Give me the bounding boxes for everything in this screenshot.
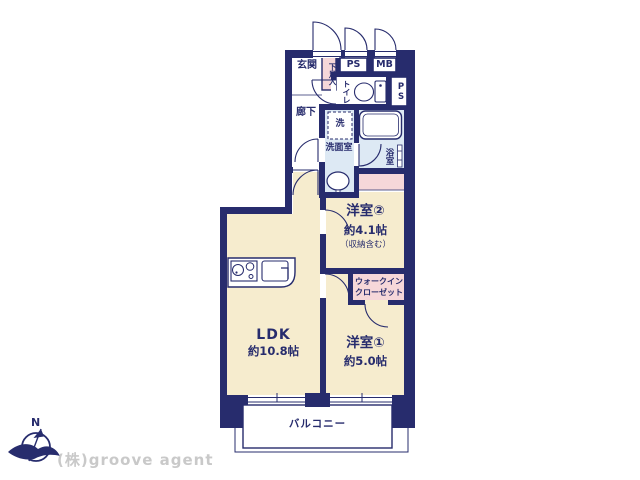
wall-left-upper — [285, 58, 292, 210]
label-wic-line2: クローゼット — [353, 288, 405, 297]
floor-ldk — [227, 214, 320, 395]
pillar-center — [305, 393, 330, 407]
label-bedroom1: 洋室① — [326, 336, 405, 352]
compass-north-icon — [8, 429, 60, 461]
label-genkan: 玄関 — [292, 60, 322, 72]
label-bedroom1-size: 約5.0帖 — [326, 355, 405, 368]
ps-door-arc — [345, 28, 367, 50]
floor-plan-canvas: 玄関 下足入 PS MB トイレ PS 廊下 洗 洗面室 浴室 洋室② 約4.1… — [0, 0, 640, 480]
stove-icon — [231, 261, 257, 281]
wall-right — [404, 58, 415, 405]
label-corridor: 廊下 — [292, 107, 320, 119]
label-ldk: LDK — [227, 327, 320, 343]
wall-left-lower — [220, 207, 227, 405]
floor-plan-drawing — [0, 0, 640, 480]
kitchen-sink-icon — [262, 261, 288, 281]
label-ldk-size: 約10.8帖 — [227, 345, 320, 358]
label-wic-line1: ウォークイン — [353, 277, 405, 286]
label-washroom: 洗面室 — [322, 143, 356, 153]
label-balcony: バルコニー — [243, 418, 392, 430]
floor-storage-strip — [359, 174, 405, 190]
label-bedroom2: 洋室② — [326, 204, 405, 220]
label-bedroom2-note: （収納含む） — [326, 241, 405, 251]
label-ps-right: PS — [393, 80, 405, 104]
wall-step — [223, 207, 292, 214]
label-shoe-storage: 下足入 — [323, 59, 336, 89]
compass-north-label: N — [31, 416, 40, 429]
pillar-left — [220, 398, 243, 428]
entry-and-service-doors — [313, 22, 396, 58]
mb-door-arc — [375, 29, 396, 50]
label-toilet: トイレ — [340, 77, 351, 107]
label-bathroom: 浴室 — [381, 144, 393, 168]
label-bedroom2-size: 約4.1帖 — [326, 224, 405, 237]
label-ps-top: PS — [340, 60, 367, 71]
kitchen-counter-icon — [228, 258, 295, 287]
company-watermark: (株)groove agent — [57, 449, 214, 470]
door-swing-arcs-top — [313, 22, 396, 50]
label-mb: MB — [373, 60, 396, 71]
entrance-door-arc — [313, 22, 341, 50]
floor-ldk-upper — [293, 172, 320, 216]
pillar-right — [392, 398, 415, 428]
label-washer-space: 洗 — [328, 119, 352, 129]
